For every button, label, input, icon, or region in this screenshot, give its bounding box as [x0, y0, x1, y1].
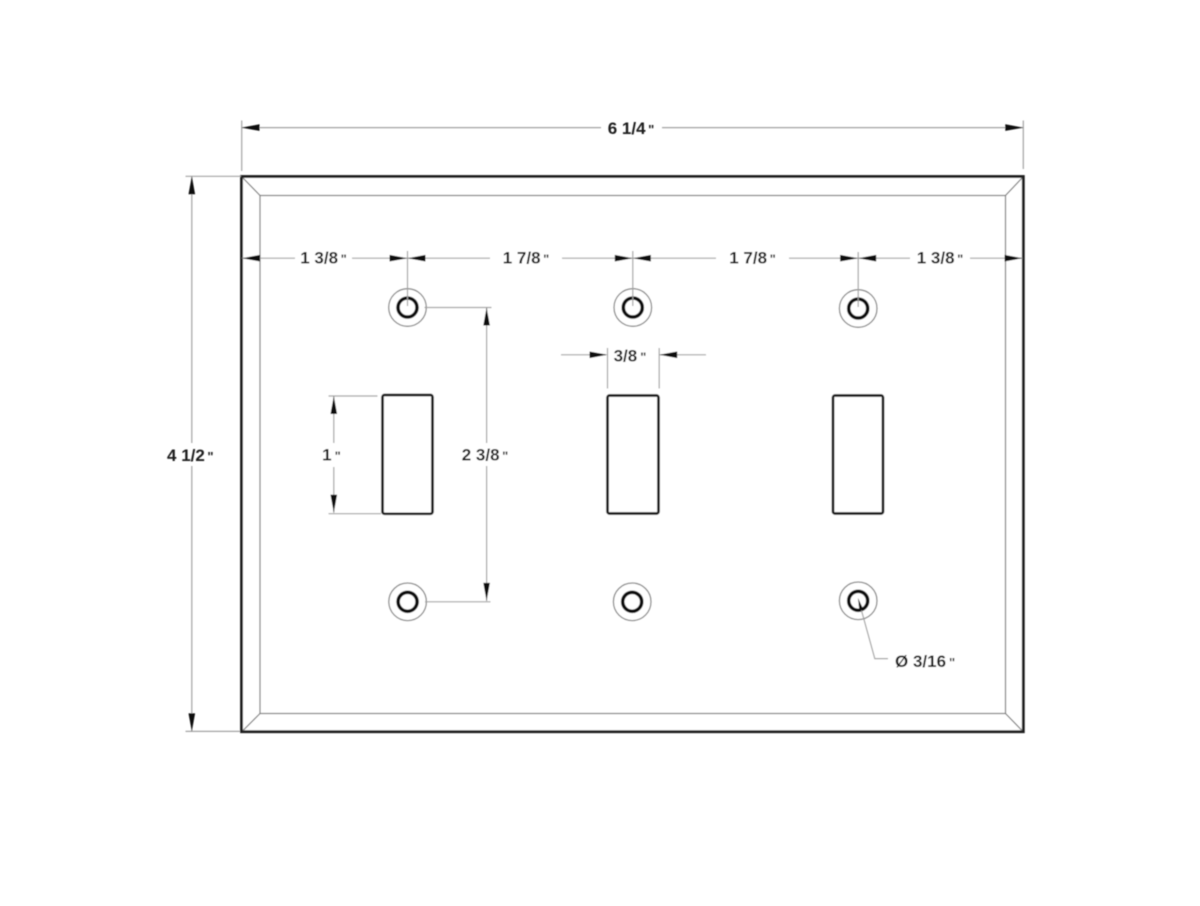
- svg-text:3/8": 3/8": [614, 347, 647, 366]
- svg-text:1": 1": [322, 446, 341, 465]
- svg-text:1 3/8": 1 3/8": [917, 249, 963, 268]
- svg-text:1 3/8": 1 3/8": [300, 249, 346, 268]
- svg-text:4 1/2": 4 1/2": [167, 446, 213, 465]
- svg-text:1 7/8": 1 7/8": [729, 249, 775, 268]
- svg-text:6 1/4": 6 1/4": [608, 119, 654, 138]
- svg-text:2 3/8": 2 3/8": [462, 446, 508, 465]
- svg-text:1 7/8": 1 7/8": [503, 249, 549, 268]
